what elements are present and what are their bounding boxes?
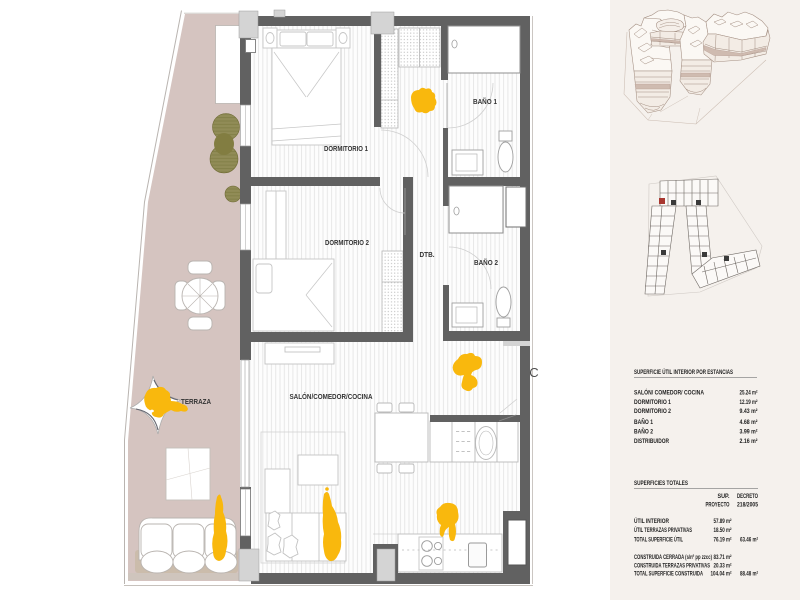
svg-text:2.16 m²: 2.16 m² bbox=[740, 438, 758, 445]
svg-text:DORMITORIO 2: DORMITORIO 2 bbox=[634, 408, 671, 415]
svg-text:PROYECTO: PROYECTO bbox=[706, 503, 730, 509]
svg-text:DTB.: DTB. bbox=[420, 252, 435, 259]
svg-text:63.46 m²: 63.46 m² bbox=[740, 537, 758, 544]
svg-text:SALÓN/ COMEDOR/ COCINA: SALÓN/ COMEDOR/ COCINA bbox=[634, 388, 704, 397]
svg-text:C: C bbox=[529, 365, 538, 380]
svg-text:TOTAL SUPERFICIE ÚTIL: TOTAL SUPERFICIE ÚTIL bbox=[634, 537, 683, 544]
svg-text:BAÑO 1: BAÑO 1 bbox=[473, 97, 497, 106]
svg-text:CONSTRUIDA TERRAZAS PRIVATIVAS: CONSTRUIDA TERRAZAS PRIVATIVAS bbox=[634, 563, 710, 570]
svg-text:ÚTIL INTERIOR: ÚTIL INTERIOR bbox=[634, 518, 669, 525]
svg-text:SUPERFICIE ÚTIL INTERIOR POR E: SUPERFICIE ÚTIL INTERIOR POR ESTANCIAS bbox=[634, 367, 733, 376]
svg-text:DISTRIBUIDOR: DISTRIBUIDOR bbox=[634, 438, 669, 445]
svg-text:25.24 m²: 25.24 m² bbox=[740, 390, 758, 397]
svg-text:18.50 m²: 18.50 m² bbox=[714, 527, 732, 534]
svg-text:4.68 m²: 4.68 m² bbox=[740, 419, 758, 426]
svg-text:DORMITORIO 2: DORMITORIO 2 bbox=[325, 240, 369, 247]
svg-text:BAÑO 2: BAÑO 2 bbox=[474, 258, 498, 267]
svg-text:9.43 m²: 9.43 m² bbox=[740, 408, 758, 415]
svg-text:ÚTIL TERRAZAS PRIVATIVAS: ÚTIL TERRAZAS PRIVATIVAS bbox=[634, 527, 692, 534]
svg-text:BAÑO 1: BAÑO 1 bbox=[634, 417, 653, 426]
svg-text:3.99 m²: 3.99 m² bbox=[740, 429, 758, 436]
svg-text:88.48 m²: 88.48 m² bbox=[740, 571, 758, 578]
svg-text:TERRAZA: TERRAZA bbox=[181, 399, 211, 406]
svg-text:SALÓN/COMEDOR/COCINA: SALÓN/COMEDOR/COCINA bbox=[290, 392, 373, 401]
svg-text:TOTAL SUPERFICIE CONSTRUIDA: TOTAL SUPERFICIE CONSTRUIDA bbox=[634, 571, 703, 578]
svg-text:DECRETO: DECRETO bbox=[737, 494, 758, 500]
svg-text:57.89 m²: 57.89 m² bbox=[714, 518, 732, 525]
svg-text:SUPERFICIES TOTALES: SUPERFICIES TOTALES bbox=[634, 480, 688, 487]
svg-text:SUP.: SUP. bbox=[718, 494, 730, 500]
svg-text:218/2005: 218/2005 bbox=[737, 503, 759, 509]
svg-text:20.33 m²: 20.33 m² bbox=[714, 563, 732, 570]
svg-text:12.19 m²: 12.19 m² bbox=[740, 399, 758, 406]
svg-text:76.19 m²: 76.19 m² bbox=[714, 537, 732, 544]
svg-text:104.04 m²: 104.04 m² bbox=[711, 571, 732, 578]
svg-text:BAÑO 2: BAÑO 2 bbox=[634, 427, 653, 436]
svg-text:DORMITORIO 1: DORMITORIO 1 bbox=[634, 399, 671, 406]
svg-text:DORMITORIO 1: DORMITORIO 1 bbox=[324, 146, 368, 153]
svg-text:83.71 m²: 83.71 m² bbox=[714, 554, 732, 561]
svg-text:CONSTRUIDA CERRADA (s/nº pp zz: CONSTRUIDA CERRADA (s/nº pp zzcc) bbox=[634, 554, 712, 561]
